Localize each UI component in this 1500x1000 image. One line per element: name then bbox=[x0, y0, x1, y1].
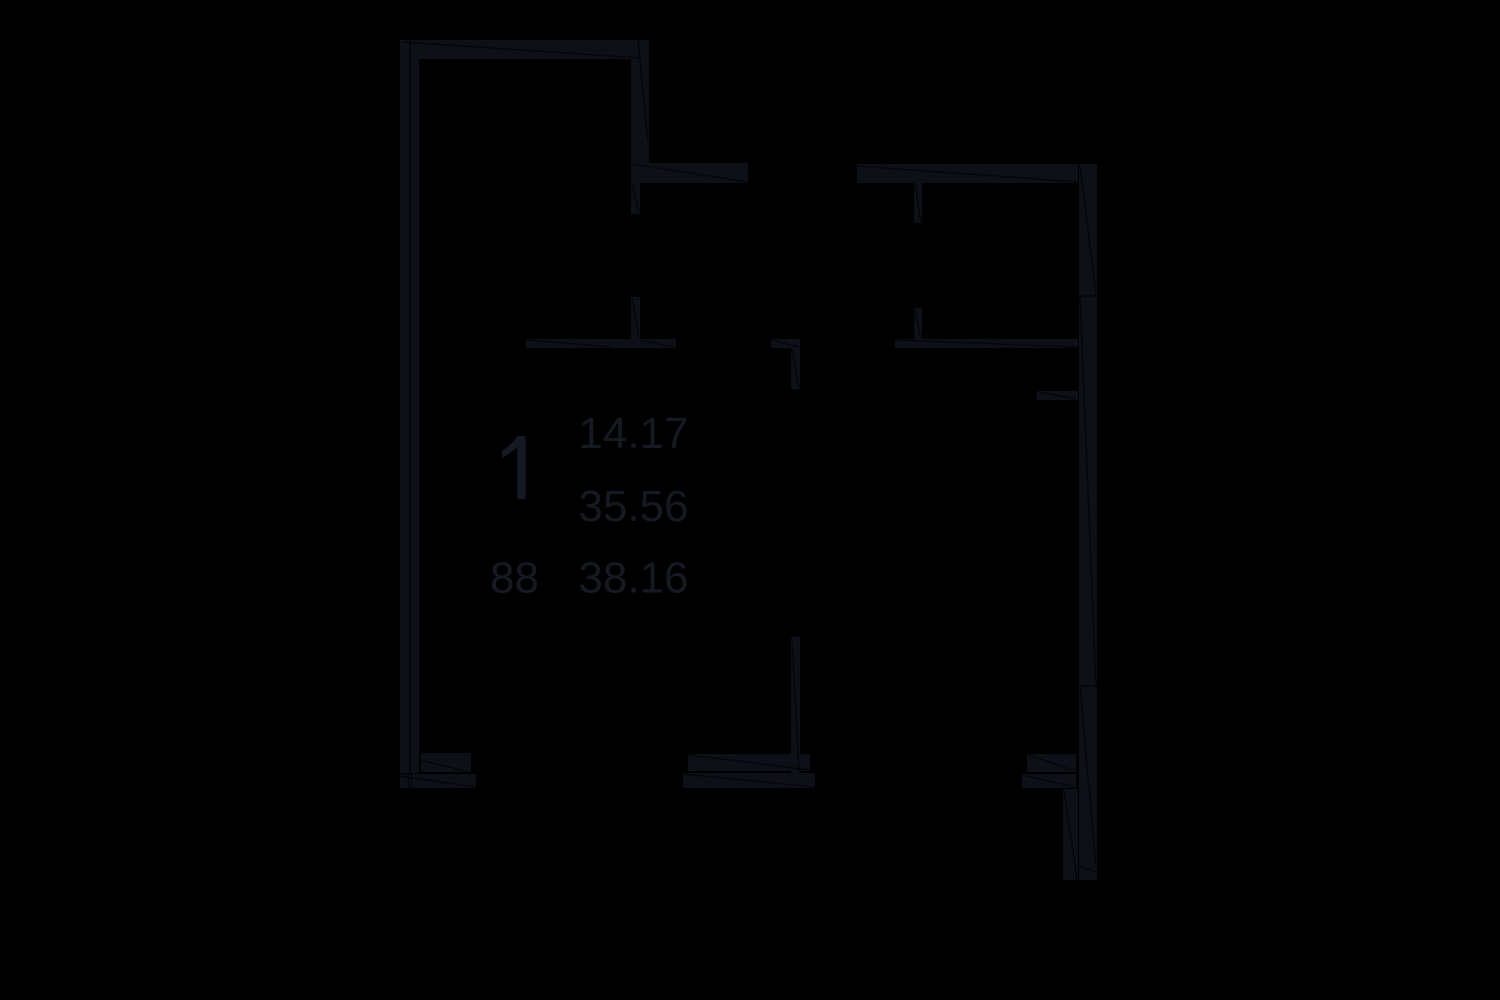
svg-text:14.17: 14.17 bbox=[578, 409, 688, 458]
svg-text:35.56: 35.56 bbox=[578, 482, 688, 531]
svg-text:38.16: 38.16 bbox=[578, 554, 688, 603]
svg-text:88: 88 bbox=[490, 554, 539, 603]
